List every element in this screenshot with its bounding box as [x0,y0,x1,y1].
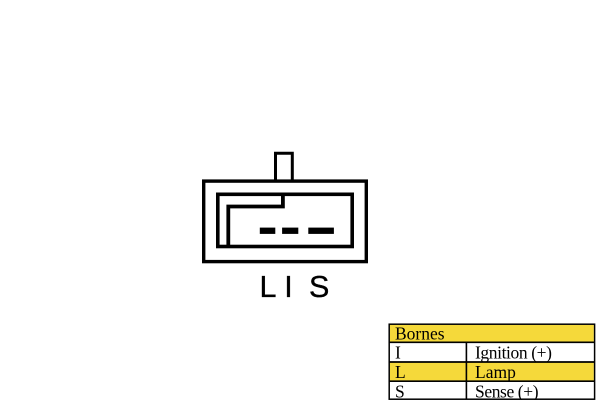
svg-text:S: S [395,381,405,400]
svg-text:Ignition (+): Ignition (+) [475,342,552,362]
svg-text:S: S [309,270,329,304]
svg-text:L: L [395,362,406,382]
svg-text:I: I [284,270,292,304]
svg-text:Bornes: Bornes [395,323,445,343]
svg-text:Sense (+): Sense (+) [475,381,539,400]
svg-text:I: I [395,342,401,362]
svg-text:L: L [260,270,277,304]
svg-text:Lamp: Lamp [475,362,516,382]
